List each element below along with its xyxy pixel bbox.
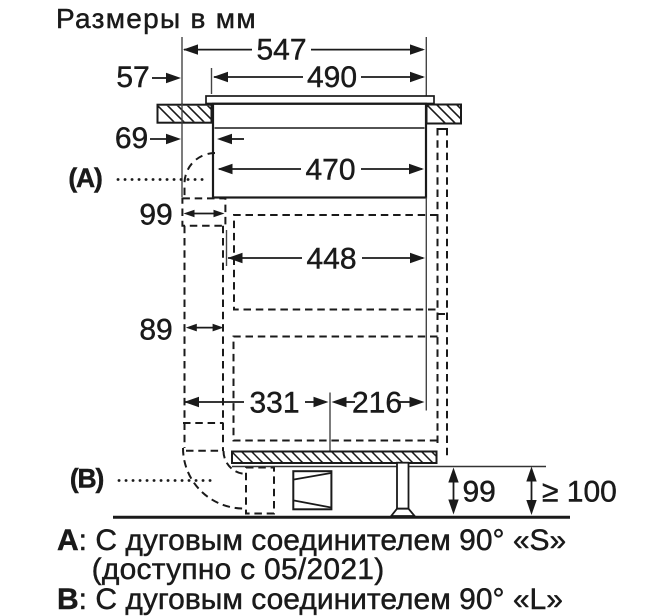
svg-text:(A): (A) bbox=[68, 163, 102, 193]
svg-text:99: 99 bbox=[139, 199, 172, 232]
svg-text:490: 490 bbox=[307, 61, 357, 94]
svg-text:Размеры в мм: Размеры в мм bbox=[56, 3, 257, 34]
svg-text:89: 89 bbox=[139, 314, 172, 347]
svg-text:216: 216 bbox=[352, 387, 402, 420]
svg-text:99: 99 bbox=[463, 476, 496, 509]
svg-text:69: 69 bbox=[115, 122, 148, 155]
svg-text:470: 470 bbox=[305, 154, 355, 187]
svg-text:331: 331 bbox=[249, 387, 299, 420]
svg-text:57: 57 bbox=[116, 61, 149, 94]
svg-text:(доступно с 05/2021): (доступно с 05/2021) bbox=[92, 553, 385, 586]
svg-text:B: С дуговым соединителем 90°: B: С дуговым соединителем 90° «L» bbox=[57, 583, 563, 616]
svg-text:≥ 100: ≥ 100 bbox=[542, 476, 617, 509]
svg-text:547: 547 bbox=[256, 33, 306, 66]
svg-text:448: 448 bbox=[306, 243, 356, 276]
svg-text:(B): (B) bbox=[70, 463, 104, 493]
